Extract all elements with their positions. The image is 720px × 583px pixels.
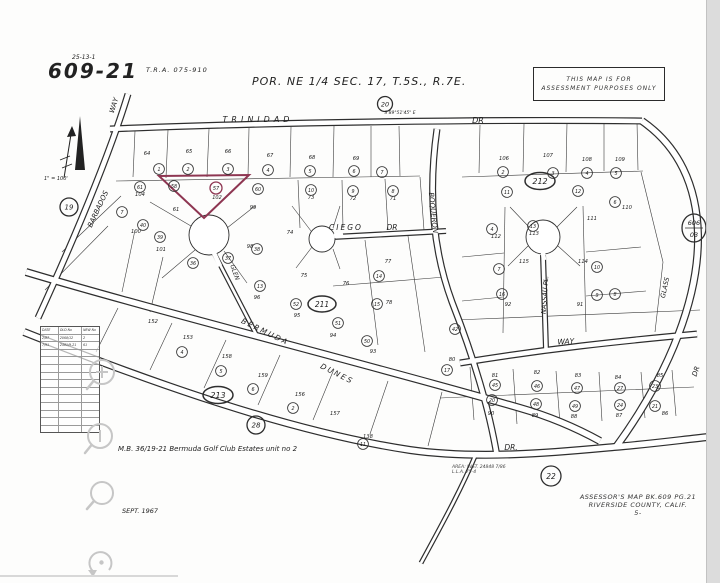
revision-table-empty-row-cell [59, 380, 82, 387]
revision-table-empty-row-cell [59, 373, 82, 380]
lot-number: 82 [534, 370, 541, 376]
lot-marker-number: 6 [352, 169, 355, 175]
lot-number: 101 [156, 247, 166, 253]
map-book-note: M.B. 36/19-21 Bermuda Golf Club Estates … [118, 446, 297, 454]
parcel-line [292, 206, 311, 231]
revision-table-row-cell: 2/87 [41, 335, 59, 342]
area-note-line-2: L.L.A. 75-4 [452, 471, 506, 476]
lot-number: 94 [330, 333, 337, 339]
lot-marker-number: 27 [617, 386, 623, 392]
block-marker-number: 211 [315, 300, 329, 309]
book-page-number: 609-21 [48, 60, 138, 82]
revision-table-empty-row-cell [59, 403, 82, 410]
lot-number: 93 [370, 349, 377, 355]
lot-marker-number: 36 [190, 261, 196, 267]
revision-table-empty-row-cell [59, 411, 82, 418]
assessor-note: ASSESSOR'S MAP BK.609 PG.21 RIVERSIDE CO… [558, 493, 718, 517]
lot-number: 72 [350, 196, 357, 202]
parcel-line [557, 207, 577, 227]
parcel-line [342, 180, 343, 228]
magnifier-plus-icon [87, 360, 114, 389]
lot-number: 115 [519, 259, 530, 265]
lot-marker-number: 23 [652, 384, 658, 390]
lot-marker-number: 58 [171, 184, 177, 190]
revision-table-empty-row-cell [82, 411, 99, 418]
lot-marker-number: 14 [376, 274, 382, 280]
lot-marker-number: 24 [617, 403, 623, 409]
parcel-line [296, 247, 312, 268]
lot-marker-number: 7 [120, 210, 123, 216]
road-surface-boqueron [433, 129, 497, 456]
lot-marker-number: 38 [254, 247, 260, 253]
lot-number: 106 [499, 156, 510, 162]
lot-marker-number: 12 [575, 189, 581, 195]
assessment-stamp-box: THIS MAP IS FOR ASSESSMENT PURPOSES ONLY [533, 67, 665, 101]
parcel-line [641, 172, 663, 262]
zoom-out-button[interactable] [82, 420, 118, 462]
lot-marker-number: 5 [308, 169, 311, 175]
lot-number: 68 [309, 155, 316, 161]
north-arrow [60, 116, 85, 178]
culdesac-neck [334, 234, 343, 236]
lot-number: 73 [308, 195, 315, 201]
revision-table-row-cell: 7/91 [41, 342, 59, 349]
lot-marker-number: 7 [380, 170, 383, 176]
lot-number: 80 [449, 357, 456, 363]
parcel-line [333, 277, 445, 286]
revision-table-header-cell: NEW No [82, 327, 99, 334]
revision-table-empty-row-cell [59, 395, 82, 402]
parcel-line [204, 340, 226, 388]
lot-marker-number: 2 [291, 406, 294, 412]
street-label: CIEGO [329, 223, 363, 232]
parcel-line [258, 355, 280, 405]
lot-marker-number: 15 [374, 302, 380, 308]
lot-marker-number: 50 [364, 339, 370, 345]
parcel-line [566, 123, 567, 172]
parcel-line [133, 131, 135, 177]
parcel-line [166, 130, 168, 178]
lot-number: 156 [295, 392, 306, 398]
revision-table-empty-row-cell [59, 426, 82, 433]
lot-marker-number: 7 [497, 267, 500, 273]
lot-number: 89 [532, 413, 539, 419]
lot-number: 86 [662, 411, 669, 417]
lot-number: 67 [267, 153, 274, 159]
parcel-line [583, 206, 586, 332]
block-marker-number: 22 [546, 472, 556, 481]
revision-table-empty-row-cell [41, 365, 59, 372]
lot-number: 159 [258, 373, 268, 379]
lot-number: 81 [492, 373, 499, 379]
revision-table-row-cell: 61 [82, 342, 99, 349]
lot-number: 66 [225, 149, 232, 155]
lot-marker-number: 52 [293, 302, 299, 308]
block-marker-number: 20 [381, 100, 389, 108]
parcel-line [290, 127, 291, 177]
parcel-line [599, 372, 602, 421]
area-note: AREA: INST. 24848 7/86 L.L.A. 75-4 [452, 466, 506, 476]
revision-table-row: 7/912481/9-2161 [41, 341, 99, 349]
lot-marker-number: 4 [266, 168, 269, 174]
lot-marker-number: 51 [335, 321, 341, 327]
parcel-line [408, 236, 425, 352]
date-note: SEPT. 1967 [122, 508, 158, 515]
revision-table-header: DATEOLD NoNEW No [41, 327, 99, 334]
lot-number: 108 [582, 157, 593, 163]
lot-marker-number: 61 [137, 185, 143, 191]
block-marker-number: 606 [688, 219, 700, 227]
culdesac-bulb [189, 215, 229, 255]
inspect-button[interactable] [84, 478, 120, 520]
street-label: DR [691, 365, 702, 377]
parcel-line [298, 180, 300, 228]
parcel-line [122, 230, 135, 292]
street-label: WAY [108, 96, 121, 114]
lot-marker-number: 9 [351, 189, 354, 195]
lot-marker-number: 47 [574, 386, 580, 392]
stamp-line-2: ASSESSMENT PURPOSES ONLY [541, 85, 656, 92]
culdesac-neck [543, 252, 544, 260]
culdesac-neck [214, 253, 220, 266]
parcel-line [333, 249, 340, 269]
parcel-line [558, 246, 580, 266]
parcel-line [462, 297, 503, 301]
magnifier-icon [87, 482, 113, 509]
street-label: S 89°51'45" E [384, 110, 415, 116]
parcel-line [479, 125, 480, 173]
page-edge-line [0, 575, 178, 577]
lot-number: 69 [353, 156, 360, 162]
lot-number: 75 [301, 273, 308, 279]
revision-table-empty-row-cell [59, 388, 82, 395]
revision-table-empty-row-cell [41, 373, 59, 380]
lot-number: 153 [183, 335, 193, 341]
block-marker-number: 213 [210, 391, 225, 400]
lot-marker-number: 48 [533, 402, 539, 408]
lot-number: 83 [575, 373, 582, 379]
lot-marker-number: 5 [219, 369, 222, 375]
revision-table-empty-row-cell [41, 357, 59, 364]
parcel-line [428, 392, 442, 446]
assessor-note-line-1: ASSESSOR'S MAP BK.609 PG.21 [558, 493, 718, 501]
lot-marker-number: 10 [308, 188, 314, 194]
assessor-note-line-2: RIVERSIDE COUNTY, CALIF. [558, 501, 718, 509]
tra-number: T.R.A. 075-910 [146, 67, 208, 74]
parcel-line [420, 177, 424, 230]
parcel-line [399, 126, 400, 176]
street-label: DR. [504, 443, 517, 452]
block-marker-number: 212 [532, 177, 547, 186]
revision-table-empty-row-cell [59, 365, 82, 372]
page-edge-strip [706, 0, 720, 583]
lot-marker-number: 16 [499, 292, 505, 298]
scale-note: 1" = 100' [44, 177, 68, 183]
road-surface-glass-dr [616, 121, 698, 447]
revision-table-empty-row-cell [41, 350, 59, 357]
highlighted-parcel-lot: 102 [212, 195, 222, 201]
street-label: DR [472, 116, 484, 125]
revision-table-empty-row-cell [41, 426, 59, 433]
lot-number: 90 [488, 411, 495, 417]
lot-marker-number: 42 [452, 327, 458, 333]
lot-marker-number: 8 [613, 292, 616, 298]
parcel-line [510, 207, 529, 227]
lot-number: 85 [657, 373, 664, 379]
lot-marker-number: 1 [157, 167, 160, 173]
revision-table-row-cell: 2068/12 [59, 335, 82, 342]
lot-number: 111 [587, 216, 597, 222]
lot-number: 61 [173, 207, 180, 213]
lot-number: 77 [385, 259, 392, 265]
revision-table-empty-row-cell [41, 418, 59, 425]
lot-marker-number: 60 [255, 187, 261, 193]
lot-marker-number: 2 [186, 167, 189, 173]
revision-table-row-cell: 2481/9-21 [59, 342, 82, 349]
revision-table-empty-row-cell [59, 418, 82, 425]
street-label: DR [387, 223, 398, 232]
lot-number: 78 [386, 300, 393, 306]
revision-table-empty-row [41, 402, 99, 410]
block-marker-number: 28 [252, 422, 261, 430]
block-marker-number: 19 [65, 204, 74, 212]
parcel-line [637, 122, 638, 170]
lot-marker-number: 4 [490, 227, 493, 233]
lot-marker-number: 21 [652, 404, 658, 410]
lot-number: 92 [505, 302, 512, 308]
parcel-line [513, 369, 517, 424]
lot-number: 87 [616, 413, 623, 419]
revision-table-empty-row-cell [59, 357, 82, 364]
lot-number: 107 [543, 153, 554, 159]
lot-marker-number: 6 [251, 387, 254, 393]
lot-marker-number: 40 [140, 223, 146, 229]
street-label: WAY [557, 336, 576, 346]
revision-table-header-cell: OLD No [59, 327, 82, 334]
reset-arrow-icon [88, 552, 111, 577]
lot-marker-number: 45 [492, 383, 498, 389]
street-label: DUNES [319, 362, 355, 387]
parcel-line [586, 247, 641, 252]
lot-marker-number: 46 [534, 384, 540, 390]
parcel-line [556, 371, 560, 424]
lot-marker-number: 4 [585, 171, 588, 177]
stamp-line-1: THIS MAP IS FOR [566, 76, 631, 83]
lot-number: 95 [294, 313, 301, 319]
revision-table-empty-row-cell [41, 395, 59, 402]
lot-number: 84 [615, 375, 622, 381]
lot-marker-number: 13 [530, 224, 536, 230]
lot-number: 112 [491, 234, 501, 240]
lot-number: 114 [578, 259, 588, 265]
highlighted-parcel-number: 57 [213, 186, 220, 192]
revision-table-header-cell: DATE [41, 327, 59, 334]
lot-number: 76 [343, 281, 350, 287]
lot-marker-number: 9 [595, 293, 598, 299]
lot-number: 71 [390, 196, 397, 202]
lot-marker-number: 10 [594, 265, 600, 271]
lot-number: 91 [577, 302, 584, 308]
revision-table-empty-row-cell [41, 403, 59, 410]
parcel-line [150, 323, 172, 370]
lot-marker-number: 11 [360, 442, 366, 448]
lot-number: 110 [622, 205, 633, 211]
street-label: BOQUERON [427, 192, 439, 234]
parcel-line [150, 202, 191, 226]
revision-table-empty-row-cell [41, 388, 59, 395]
lot-marker-number: 37 [225, 256, 231, 262]
lot-number: 158 [222, 354, 233, 360]
parcel-line [207, 129, 209, 177]
lot-marker-number: 49 [572, 404, 578, 410]
lot-number: 74 [287, 230, 294, 236]
lot-marker-number: 6 [613, 200, 616, 206]
lot-marker-number: 11 [504, 190, 510, 196]
revision-table-empty-row-cell [41, 411, 59, 418]
lot-marker-number: 5 [614, 171, 617, 177]
lot-number: 109 [615, 157, 625, 163]
parcel-line [462, 253, 504, 257]
assessor-note-mark: 5- [558, 509, 718, 517]
lot-marker-number: 2 [501, 170, 504, 176]
road-surface-way [460, 334, 697, 363]
parcel-line [455, 310, 700, 320]
lot-marker-number: 8 [391, 189, 394, 195]
revision-table-empty-row-cell [41, 380, 59, 387]
map-title: POR. NE 1/4 SEC. 17, T.5S., R.7E. [252, 76, 466, 88]
lot-number: 113 [529, 231, 539, 237]
zoom-in-button[interactable] [84, 356, 120, 398]
lot-number: 99 [250, 205, 257, 211]
parcel-line [365, 240, 378, 345]
lot-number: 64 [144, 151, 151, 157]
revision-table-empty-row-cell [59, 350, 82, 357]
revision-table-row-cell: 2 [82, 335, 99, 342]
street-label: TRINIDAD [223, 115, 294, 124]
revision-table-empty-row-cell [82, 403, 99, 410]
street-label: NASSAU PL. [540, 276, 551, 315]
lot-number: 65 [186, 149, 193, 155]
magnifier-minus-icon [85, 424, 112, 453]
lot-number: 152 [148, 319, 158, 325]
parcel-line [672, 370, 676, 416]
parcel-line [523, 124, 524, 172]
parcel-line [248, 128, 249, 176]
lot-marker-number: 39 [157, 235, 163, 241]
lot-marker-number: 13 [257, 284, 263, 290]
parcel-line [370, 381, 388, 434]
block-marker-number: 03 [690, 231, 698, 239]
parcel-line [333, 126, 334, 177]
lot-number: 104 [135, 192, 145, 198]
lot-number: 157 [330, 411, 341, 417]
lot-number: 96 [254, 295, 261, 301]
assessor-map-page: 5710264656667686910610710810910473727161… [0, 0, 720, 583]
lot-marker-number: 20 [489, 398, 495, 404]
lot-marker-number: 4 [180, 350, 183, 356]
lot-number: 88 [571, 414, 578, 420]
revision-table-row: 2/872068/122 [41, 334, 99, 342]
revision-table-empty-row [41, 410, 99, 418]
lot-marker-number: 17 [444, 368, 450, 374]
lot-marker-number: 3 [226, 167, 229, 173]
